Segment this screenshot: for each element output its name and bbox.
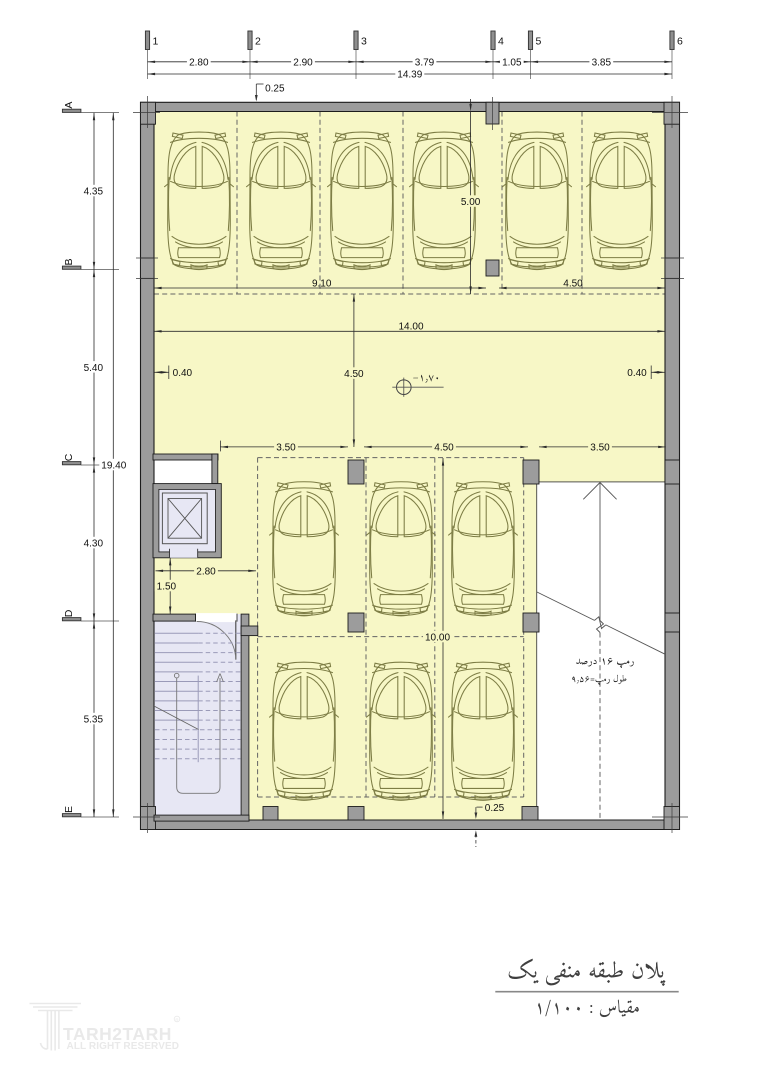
svg-text:3.50: 3.50 (590, 443, 610, 454)
svg-text:A: A (63, 102, 75, 109)
svg-text:B: B (63, 258, 75, 265)
svg-text:3.85: 3.85 (592, 57, 612, 68)
svg-text:4.35: 4.35 (84, 187, 104, 198)
svg-text:19.40: 19.40 (101, 461, 126, 472)
svg-text:5: 5 (536, 35, 542, 47)
svg-text:2.80: 2.80 (196, 566, 216, 577)
svg-text:3.79: 3.79 (415, 57, 435, 68)
svg-text:2: 2 (255, 35, 261, 47)
svg-text:10.00: 10.00 (425, 633, 450, 644)
svg-text:14.39: 14.39 (397, 70, 422, 81)
svg-text:ALL RIGHT RESERVED: ALL RIGHT RESERVED (67, 1041, 180, 1052)
svg-text:1.50: 1.50 (157, 582, 177, 593)
svg-text:2.80: 2.80 (189, 57, 209, 68)
svg-text:4.50: 4.50 (563, 278, 583, 289)
svg-text:0.40: 0.40 (173, 368, 193, 379)
svg-text:0.25: 0.25 (265, 84, 285, 95)
svg-text:9.10: 9.10 (312, 278, 332, 289)
svg-text:E: E (63, 806, 75, 813)
svg-text:0.25: 0.25 (485, 803, 505, 814)
svg-text:0.40: 0.40 (627, 368, 647, 379)
svg-text:3: 3 (361, 35, 367, 47)
svg-text:C: C (63, 453, 75, 461)
svg-text:1: 1 (153, 35, 159, 47)
svg-text:4.50: 4.50 (344, 369, 364, 380)
svg-text:5.40: 5.40 (84, 363, 104, 374)
svg-text:6: 6 (677, 35, 683, 47)
svg-text:4.30: 4.30 (84, 539, 104, 550)
svg-text:D: D (63, 609, 75, 617)
svg-text:1.05: 1.05 (502, 57, 522, 68)
svg-text:5.00: 5.00 (461, 197, 481, 208)
svg-text:4.50: 4.50 (434, 443, 454, 454)
svg-text:14.00: 14.00 (398, 322, 423, 333)
svg-text:4: 4 (498, 35, 504, 47)
svg-text:2.90: 2.90 (293, 57, 313, 68)
svg-text:3.50: 3.50 (276, 443, 296, 454)
svg-text:5.35: 5.35 (84, 715, 104, 726)
